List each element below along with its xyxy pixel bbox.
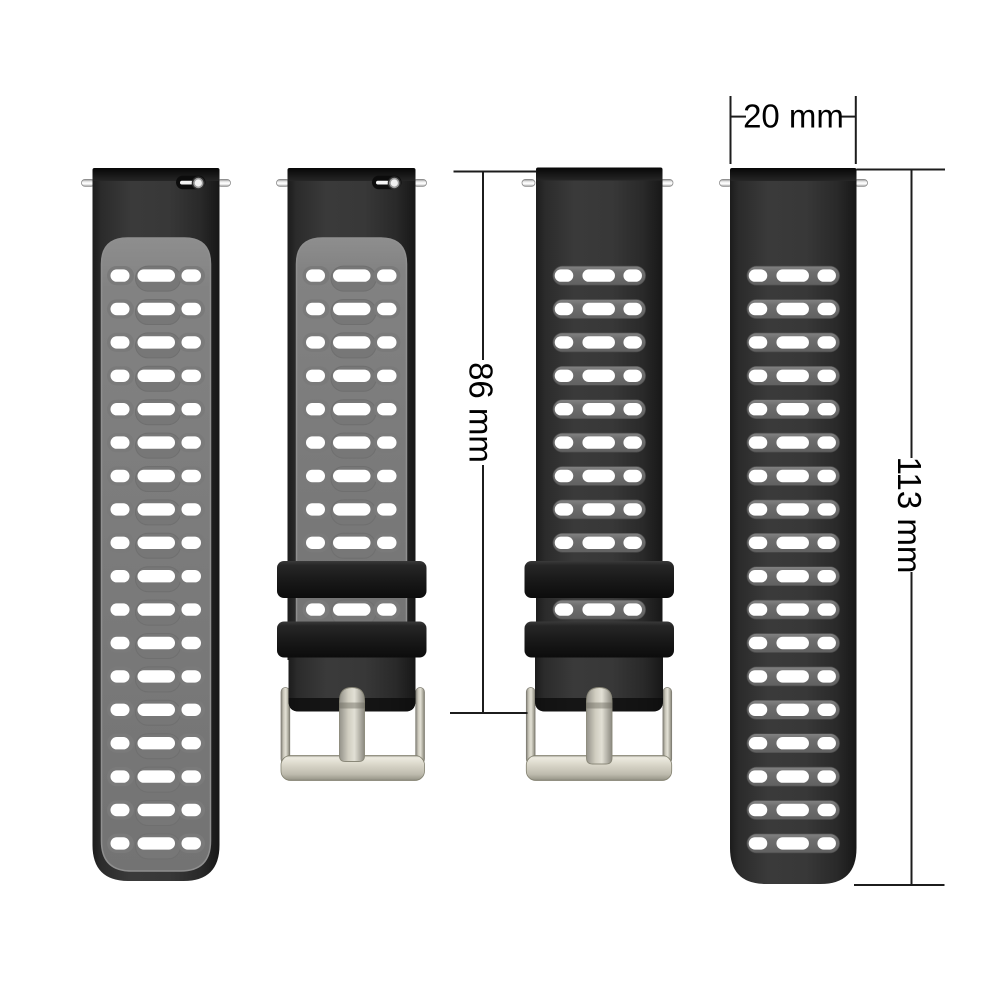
svg-text:20 mm: 20 mm [743, 98, 844, 135]
svg-text:86 mm: 86 mm [463, 362, 500, 463]
svg-text:113 mm: 113 mm [891, 457, 928, 574]
